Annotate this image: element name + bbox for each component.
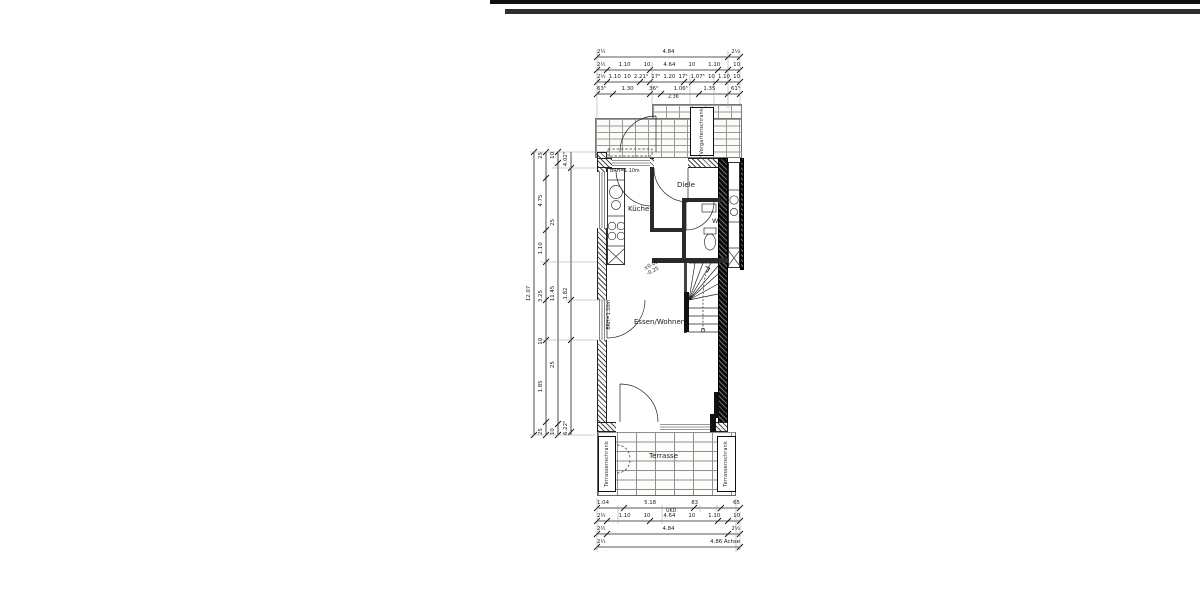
- front-garden-closet-label: Vorgartenschrank: [700, 108, 705, 155]
- dim-row-bottom-4: 2½4.86 Achse: [597, 540, 740, 545]
- dim-col-left-4: 6.22⁵1.824.02⁵: [564, 152, 569, 435]
- dimension-label: 2½: [731, 50, 740, 55]
- dimension-label: 12.07: [527, 286, 532, 301]
- dimension-label: 63⁵: [597, 87, 606, 92]
- dimension-label: 10: [688, 63, 695, 68]
- dimension-label: 1.10: [708, 63, 720, 68]
- dimension-label: 65: [733, 501, 740, 506]
- dimension-label: 61⁵: [731, 87, 740, 92]
- room-label-living: Essen/Wohnen: [634, 319, 685, 326]
- dimension-label: 2½: [597, 514, 606, 519]
- dim-row-bottom-1: 1.045.188365: [597, 501, 740, 506]
- dimension-label: 4.02⁵: [564, 152, 569, 166]
- scan-artifact-bar-second: [505, 9, 1200, 14]
- partition-kitchen-hall: [650, 168, 654, 232]
- dimension-label: 2½: [597, 63, 606, 68]
- terrace-closet-right-label: Terrassenschrank: [724, 441, 729, 487]
- dimension-label: 6.22⁵: [564, 421, 569, 435]
- dimension-label: 1.10: [619, 63, 631, 68]
- dimension-label: 1.10: [708, 514, 720, 519]
- dim-col-left-3: 102511.452510: [551, 152, 556, 435]
- dim-row-bottom-2: 2½1.10104.64101.1010: [597, 514, 740, 519]
- dimension-label: 10: [733, 75, 740, 80]
- dimension-label: 10: [708, 75, 715, 80]
- dimension-label: 1.10: [619, 514, 631, 519]
- dimension-label: 11.45: [551, 286, 556, 301]
- dimension-label: 2½: [731, 527, 740, 532]
- dim-col-left-1: 12.07: [527, 152, 532, 435]
- dimension-label: 1.82: [564, 288, 569, 300]
- dimension-label: 25: [539, 428, 544, 435]
- dimension-label: 25: [551, 361, 556, 368]
- dimension-label: 1.85: [539, 380, 544, 392]
- neighbor-outer-wall: [740, 158, 744, 270]
- top-window-opening: [612, 158, 650, 168]
- dimension-label: 1.20: [663, 75, 675, 80]
- dimension-label: 17⁵: [651, 75, 660, 80]
- dimension-label: 10: [624, 75, 631, 80]
- dimension-label: 10: [539, 338, 544, 345]
- kitchen-counter: [607, 168, 625, 265]
- stair-newel-wall: [684, 292, 689, 332]
- room-label-kitchen: Küche: [628, 206, 649, 213]
- wc-wall-top: [682, 198, 722, 202]
- room-label-terrace: Terrasse: [649, 453, 678, 460]
- living-door-opening: [597, 300, 607, 340]
- dimension-label: 2½: [597, 75, 606, 80]
- dimension-label: 2½: [597, 50, 606, 55]
- entrance-door-opening: [654, 158, 688, 168]
- dimension-label: 1.10: [539, 242, 544, 254]
- dimension-label: 10: [733, 514, 740, 519]
- dim-row-bottom-3: 2½4.842½: [597, 527, 740, 532]
- dim-sub-top: 2.36: [668, 96, 679, 101]
- dim-row-top-2: 2½1.10104.64101.1010: [597, 63, 740, 68]
- dimension-label: 1.10: [718, 75, 730, 80]
- annotation-kitchen-window-sill: BRH=1.10m: [610, 170, 640, 175]
- kitchen-window-opening: [597, 172, 607, 228]
- scan-artifact-bar-top: [490, 0, 1200, 4]
- front-path-paving: [595, 118, 742, 158]
- dimension-label: 4.84: [662, 50, 674, 55]
- room-label-wc: WC: [712, 218, 723, 225]
- front-garden-closet: Vorgartenschrank: [690, 107, 714, 156]
- wc-wall-bottom: [652, 258, 728, 263]
- annotation-living-window-sill: BRH=1.10m: [608, 300, 613, 330]
- dimension-label: 10: [551, 152, 556, 159]
- dimension-label: 10: [551, 428, 556, 435]
- dimension-label: 1.35: [703, 87, 715, 92]
- dim-col-left-2: 251.85103.251.104.7525: [539, 152, 544, 435]
- dimension-label: 4.84: [662, 527, 674, 532]
- dimension-label: 1.10: [609, 75, 621, 80]
- dimension-label: 5.18: [644, 501, 656, 506]
- dimension-label: 10: [733, 63, 740, 68]
- dimension-label: 10: [644, 514, 651, 519]
- dimension-label: 17⁵: [679, 75, 688, 80]
- terrace-paving: [597, 432, 736, 496]
- dimension-label: 4.75: [539, 195, 544, 207]
- dimension-label: 1.06⁵: [674, 87, 688, 92]
- partition-hall-bottom: [650, 228, 686, 232]
- wc-wall-left: [682, 198, 686, 263]
- dimension-label: 4.64: [663, 63, 675, 68]
- dimension-label: 1.07⁵: [691, 75, 705, 80]
- dim-sub-bottom: UKD: [666, 510, 676, 515]
- radiator: [714, 392, 719, 418]
- dimension-label: 36⁵: [649, 87, 658, 92]
- terrace-window-opening: [660, 422, 712, 432]
- neighbor-kitchen-counter: [728, 162, 740, 268]
- dimension-label: 83: [691, 501, 698, 506]
- dimension-label: 1.30: [622, 87, 634, 92]
- terrace-closet-left: Terrassenschrank: [598, 436, 616, 492]
- room-label-hall: Diele: [677, 182, 695, 189]
- terrace-closet-left-label: Terrassenschrank: [605, 441, 610, 487]
- dimension-label: 4.86 Achse: [710, 540, 740, 545]
- dim-row-top-3: 2½1.10102.21⁵17⁵1.2017⁵1.07⁵101.1010: [597, 75, 740, 80]
- dimension-label: 25: [539, 152, 544, 159]
- dimension-label: 10: [644, 63, 651, 68]
- dimension-label: 2½: [597, 527, 606, 532]
- dim-row-top-1: 2½4.842½: [597, 50, 740, 55]
- terrace-door-opening: [616, 422, 660, 432]
- dimension-label: 10: [688, 514, 695, 519]
- terrace-closet-right: Terrassenschrank: [717, 436, 736, 492]
- dimension-label: 2.21⁵: [634, 75, 648, 80]
- scanned-floor-plan-page: Vorgartenschrank Terrassenschrank Terras…: [0, 0, 1200, 600]
- dimension-label: 25: [551, 219, 556, 226]
- dimension-label: 1.04: [597, 501, 609, 506]
- dimension-label: 2½: [597, 540, 606, 545]
- dimension-label: 3.25: [539, 290, 544, 302]
- dim-row-top-4: 63⁵1.3036⁵1.06⁵1.3561⁵: [597, 87, 740, 92]
- dimension-label: 4.64: [663, 514, 675, 519]
